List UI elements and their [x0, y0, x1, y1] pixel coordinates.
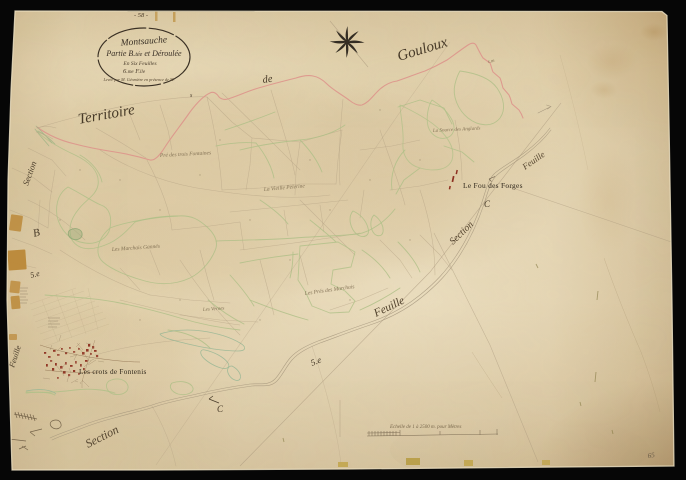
- svg-text:Les crots de Fontenis: Les crots de Fontenis: [79, 368, 147, 376]
- svg-text:de: de: [262, 74, 274, 86]
- svg-text:- 58 -: - 58 -: [134, 12, 148, 19]
- svg-text:Partie B.tée et Déroulée: Partie B.tée et Déroulée: [105, 49, 182, 58]
- svg-text:C: C: [484, 199, 491, 209]
- svg-text:Echelle de 1 à 2500 m. pou: Echelle de 1 à 2500 m. pour Mètres: [389, 425, 462, 430]
- svg-text:En Six Feuilles: En Six Feuilles: [122, 61, 156, 67]
- svg-text:Le Fou des Forges: Le Fou des Forges: [463, 181, 523, 190]
- svg-text:6.me F.lle: 6.me F.lle: [123, 68, 146, 75]
- svg-text:C: C: [217, 404, 224, 414]
- svg-text:Levée par M. Géomètre en prése: Levée par M. Géomètre en présence de M.: [102, 77, 174, 82]
